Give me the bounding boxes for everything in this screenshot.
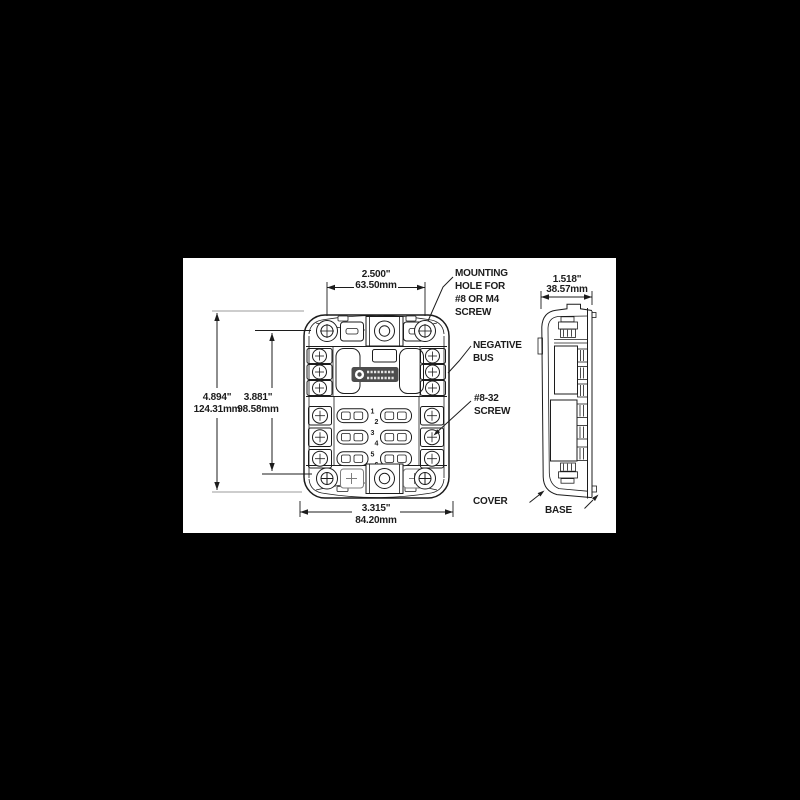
leader-mounting-hole (428, 277, 453, 321)
diagram-canvas: 1 2 3 4 5 6 (0, 0, 800, 800)
callout-screw-line1: #8-32 (474, 394, 499, 404)
side-terminal-stud-bottom (559, 463, 578, 483)
fuse-block-technical-drawing: 1 2 3 4 5 6 (0, 0, 800, 800)
mounting-hole-top-right (415, 321, 436, 342)
side-cover-outline (538, 304, 592, 497)
dim-height-mounting-inches: 3.881" (218, 393, 298, 403)
circuit-number-1: 1 (371, 409, 375, 416)
callout-negative-bus-line2: BUS (473, 354, 494, 364)
fuse-4 (381, 430, 412, 444)
circuit-number-3: 3 (371, 430, 375, 437)
side-fuse-block (551, 400, 588, 461)
leader-cover (530, 491, 545, 503)
main-terminal-bottom (366, 464, 403, 494)
fuse-2 (381, 409, 412, 423)
mounting-hole-top-left (317, 321, 338, 342)
circuit-number-4: 4 (375, 441, 379, 448)
callout-mounting-hole-line2: HOLE FOR (455, 282, 505, 292)
callout-negative-bus-line1: NEGATIVE (473, 341, 522, 351)
circuit-number-2: 2 (375, 419, 379, 426)
main-terminal-top (366, 317, 403, 347)
mounting-hole-bottom-left (317, 468, 338, 489)
leader-lines (428, 277, 599, 509)
callout-mounting-hole-line1: MOUNTING (455, 269, 508, 279)
circuit-number-5: 5 (371, 452, 375, 459)
negative-terminal-top-left (341, 322, 364, 341)
callout-screw-line2: SCREW (474, 407, 510, 417)
fuse-section: 1 2 3 4 5 6 (309, 397, 444, 469)
positive-terminal-bottom-left (341, 469, 364, 488)
callout-mounting-hole-line4: SCREW (455, 308, 491, 318)
side-view (538, 304, 597, 498)
fuse-1 (337, 409, 368, 423)
front-view: 1 2 3 4 5 6 (304, 315, 449, 498)
callout-base: BASE (545, 506, 572, 516)
mounting-hole-bottom-right (415, 468, 436, 489)
dim-side-depth-mm: 38.57mm (517, 285, 617, 295)
dim-height-mounting-mm: 98.58mm (218, 405, 298, 415)
dim-top-width-inches: 2.500" (326, 270, 426, 280)
brand-logo (352, 367, 399, 382)
leader-negative-bus (448, 346, 471, 373)
dim-bottom-width-inches: 3.315" (326, 504, 426, 514)
side-terminal-stud-top (559, 317, 578, 338)
callout-mounting-hole-line3: #8 OR M4 (455, 295, 499, 305)
dim-top-width-mm: 63.50mm (326, 281, 426, 291)
dim-bottom-width-mm: 84.20mm (326, 516, 426, 526)
callout-cover: COVER (473, 497, 508, 507)
fuse-5 (337, 452, 368, 466)
side-base-backplate (588, 308, 597, 499)
side-negative-bus-block (555, 346, 588, 397)
fuse-3 (337, 430, 368, 444)
